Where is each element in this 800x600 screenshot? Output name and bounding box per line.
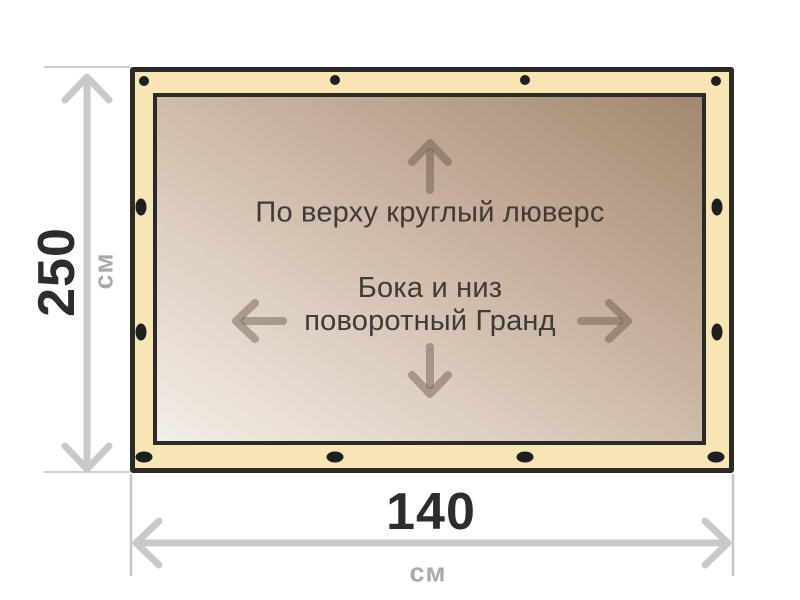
height-unit-label: см — [89, 253, 120, 290]
grommet-icon — [136, 199, 147, 216]
width-value-label: 140 — [386, 482, 476, 542]
center-fastener-note-line1: Бока и низ — [304, 272, 556, 305]
height-value-label: 250 — [27, 227, 87, 317]
grommet-icon — [327, 452, 344, 463]
tarp-canvas — [153, 93, 706, 445]
grommet-icon — [136, 324, 147, 341]
top-grommet-note: По верху круглый люверс — [255, 197, 604, 230]
grommet-icon — [708, 452, 725, 463]
center-fastener-note-line2: поворотный Гранд — [304, 305, 556, 338]
center-fastener-note: Бока и низ поворотный Гранд — [304, 272, 556, 338]
grommet-icon — [712, 199, 723, 216]
grommet-icon — [712, 324, 723, 341]
grommet-icon — [711, 76, 721, 86]
grommet-icon — [520, 75, 530, 85]
width-unit-label: см — [410, 558, 447, 589]
grommet-icon — [136, 452, 153, 463]
grommet-icon — [517, 452, 534, 463]
grommet-icon — [330, 75, 340, 85]
grommet-icon — [139, 76, 149, 86]
tarp-size-diagram: По верху круглый люверс Бока и низ повор… — [0, 0, 800, 600]
